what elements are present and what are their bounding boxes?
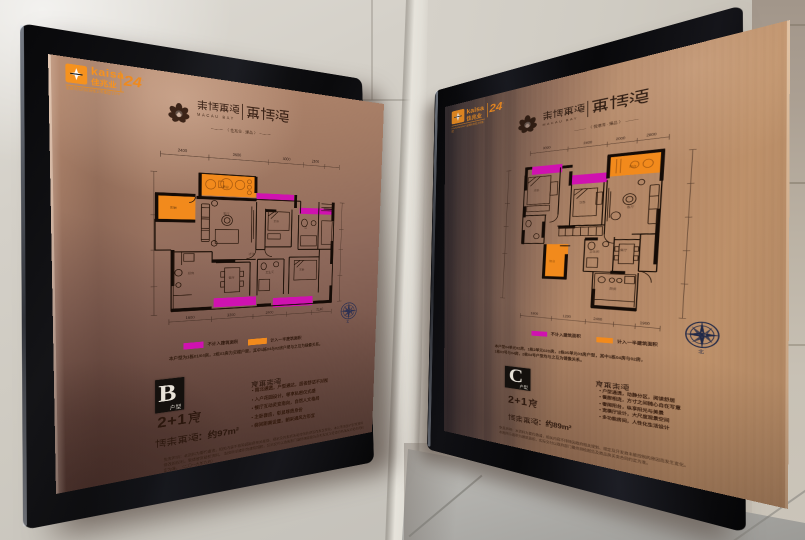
svg-text:卫生间: 卫生间 (265, 270, 274, 274)
svg-text:2400: 2400 (593, 318, 603, 322)
svg-text:次卧: 次卧 (299, 267, 304, 271)
svg-text:晒台: 晒台 (223, 184, 229, 189)
svg-text:2400: 2400 (178, 149, 188, 154)
svg-text:1900: 1900 (640, 322, 652, 326)
svg-text:1600: 1600 (186, 316, 195, 321)
svg-text:厨房: 厨房 (188, 271, 195, 276)
svg-text:阳台: 阳台 (170, 205, 177, 210)
svg-text:主卧: 主卧 (273, 219, 279, 223)
svg-text:3600: 3600 (233, 153, 242, 158)
svg-text:2100: 2100 (312, 160, 320, 165)
svg-text:卫: 卫 (304, 225, 307, 228)
svg-text:客厅: 客厅 (223, 211, 229, 215)
svg-text:卫生间: 卫生间 (589, 248, 600, 254)
svg-text:3000: 3000 (543, 147, 552, 151)
svg-text:餐厅: 餐厅 (620, 246, 628, 252)
svg-text:2400: 2400 (266, 311, 274, 316)
svg-text:1200: 1200 (562, 316, 572, 320)
svg-text:2000: 2000 (616, 137, 627, 142)
svg-text:餐厅: 餐厅 (228, 275, 234, 279)
svg-text:3300: 3300 (227, 313, 236, 318)
svg-text:主卧: 主卧 (533, 187, 539, 193)
svg-text:2800: 2800 (646, 133, 658, 138)
svg-text:2140: 2140 (316, 308, 323, 312)
svg-text:过道: 过道 (248, 251, 254, 255)
svg-text:2400: 2400 (583, 141, 593, 145)
svg-text:次卧: 次卧 (579, 199, 586, 205)
svg-text:1800: 1800 (531, 313, 540, 317)
svg-text:厨房: 厨房 (609, 285, 617, 292)
svg-text:3000: 3000 (283, 157, 291, 162)
